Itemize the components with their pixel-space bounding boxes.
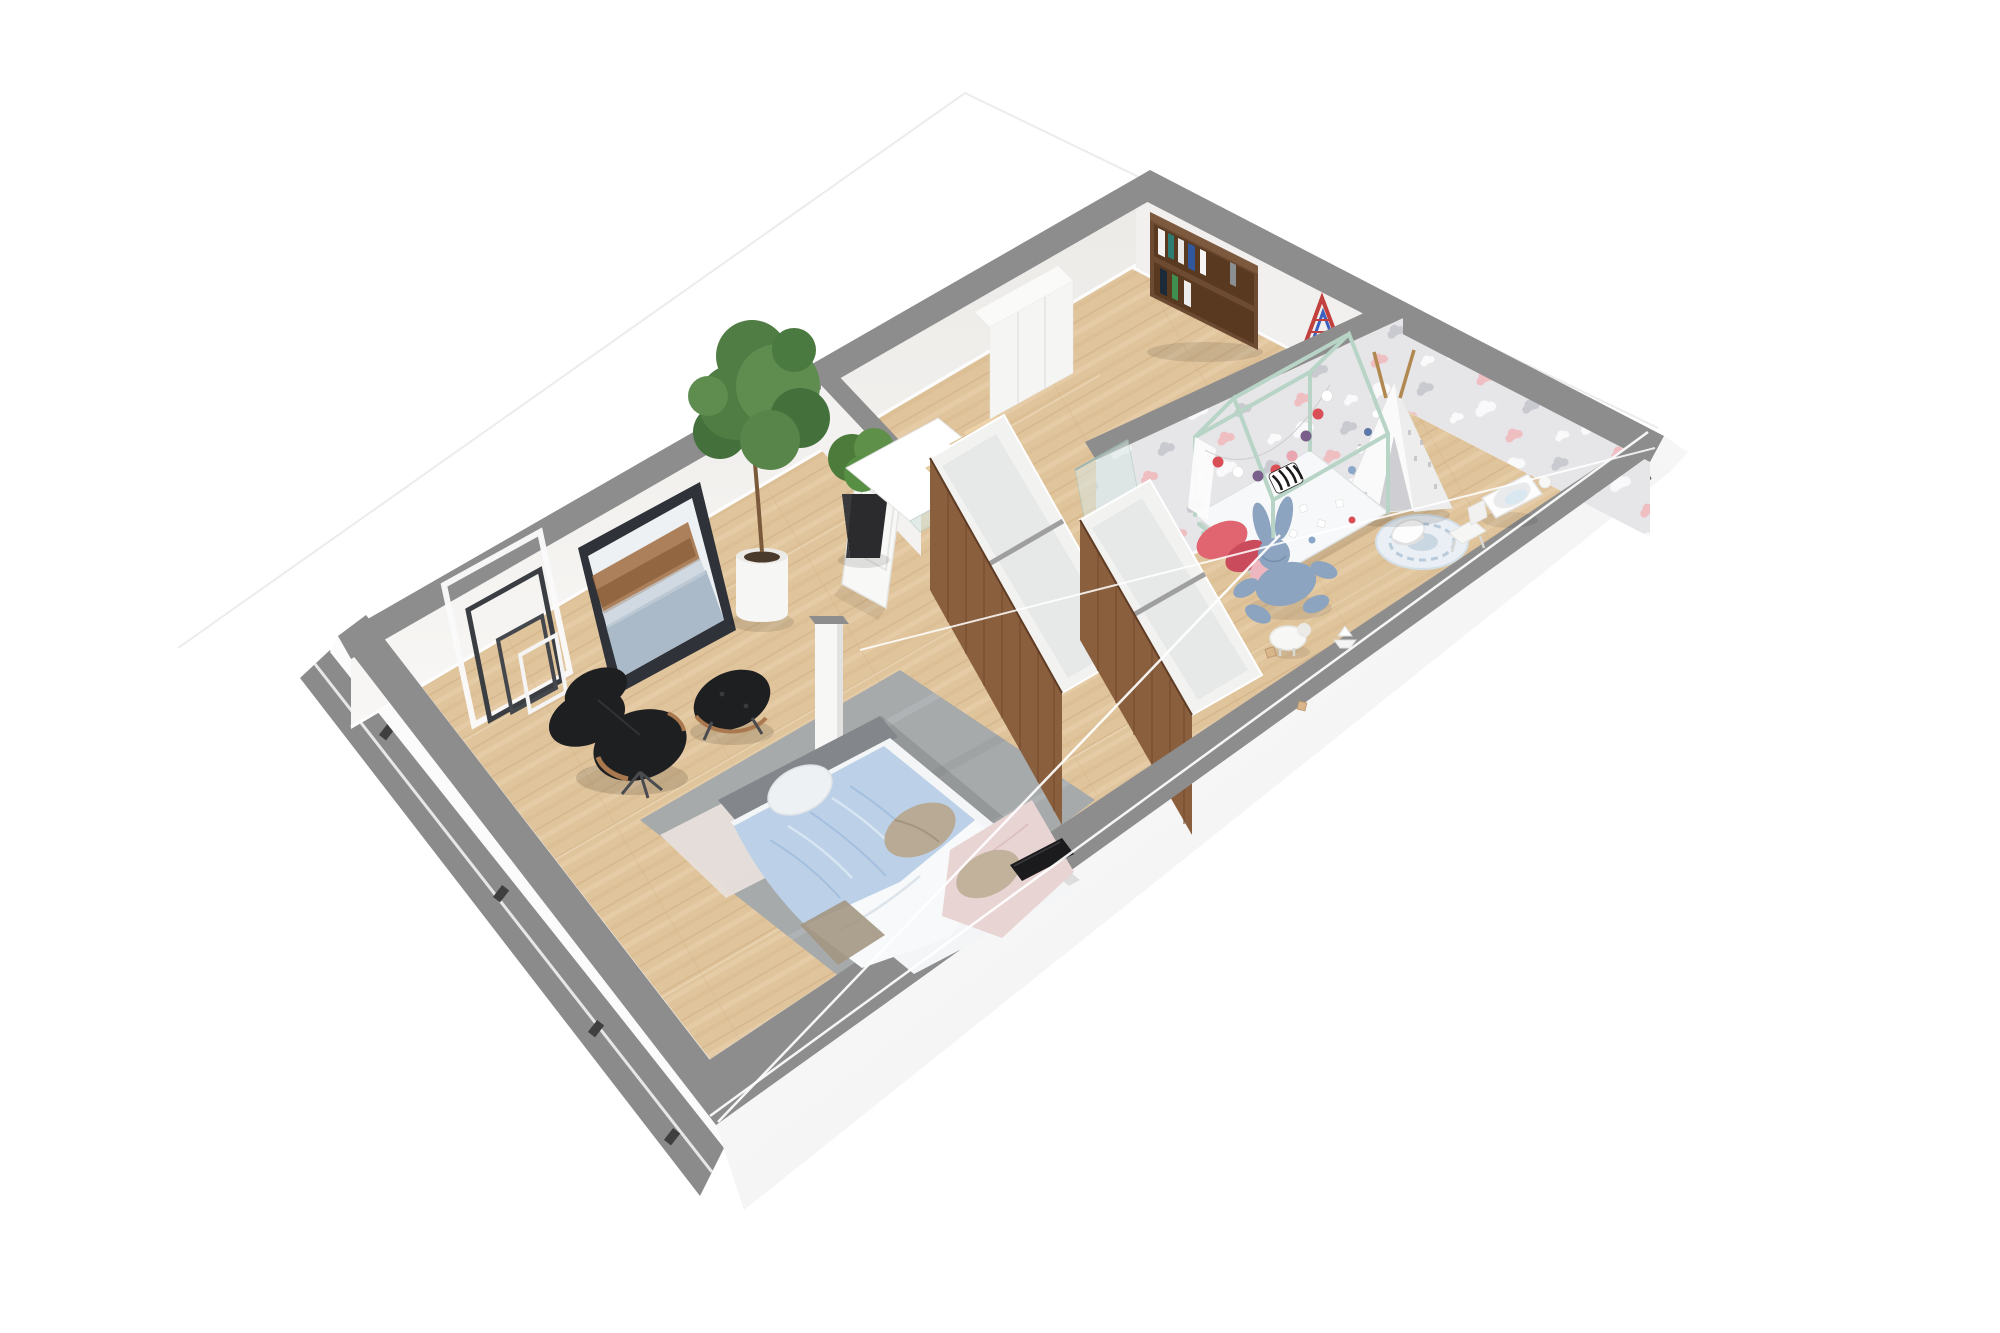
book (1168, 233, 1174, 260)
ottoman-tuft (744, 704, 749, 709)
book (1178, 238, 1184, 265)
book (1158, 228, 1165, 257)
book (1200, 249, 1206, 276)
block (1297, 701, 1307, 711)
bookshelf-shadow (1147, 342, 1263, 362)
book (1160, 268, 1167, 296)
ottoman-tuft (720, 692, 725, 697)
floorplan-svg (0, 0, 2000, 1333)
bassinet-shadow (1482, 512, 1538, 528)
sheep-head (1297, 623, 1311, 637)
book (1230, 262, 1236, 287)
book (1172, 274, 1178, 301)
column-cap (809, 616, 849, 624)
book (1188, 243, 1195, 271)
pot-soil (744, 552, 780, 563)
white-pot (736, 556, 788, 622)
floorplan-render-scene (0, 0, 2000, 1333)
book (1184, 280, 1191, 307)
